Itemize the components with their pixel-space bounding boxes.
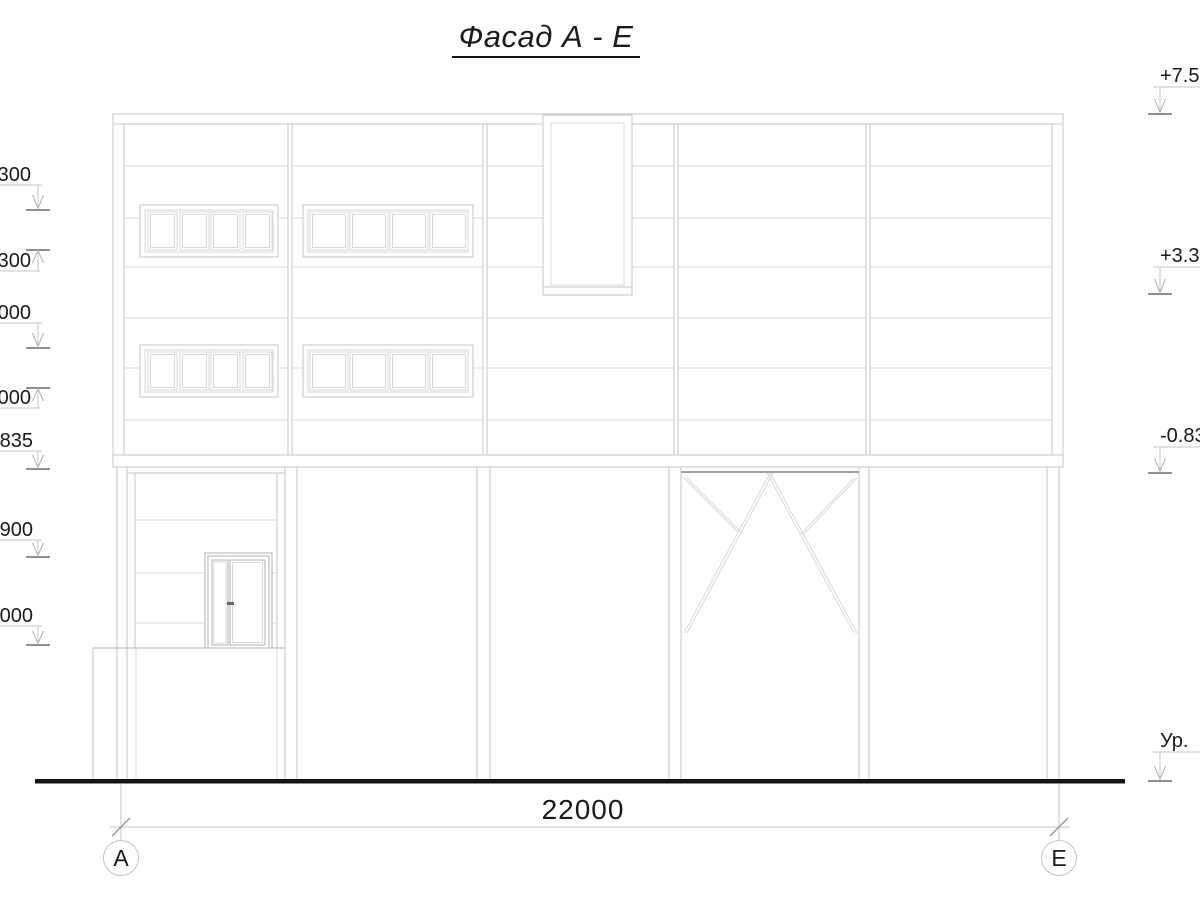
facade-elevation-drawing: Фасад А - Е (0, 0, 1200, 900)
entrance-bay (93, 473, 285, 779)
columns (117, 467, 1059, 780)
dimension-line-group: 22000 (110, 784, 1070, 841)
ribbon-window-bottom-left (140, 345, 278, 397)
elevation-value: 000 (0, 302, 31, 324)
elevation-value: +7.50 (1160, 65, 1200, 87)
elevation-marker-left-3: 000 (0, 302, 50, 348)
elevation-marker-left-2: .300 (0, 250, 50, 272)
title-block: Фасад А - Е (452, 19, 640, 57)
elevation-marker-right-4: Ур. (1148, 730, 1200, 781)
elevation-value: .835 (0, 430, 33, 452)
elevation-marker-left-6: .900 (0, 519, 50, 557)
ground-line (35, 779, 1125, 784)
elevation-marker-right-2: +3.30 (1148, 245, 1200, 294)
entrance-door (205, 553, 272, 648)
ribbon-window-top-right (303, 205, 473, 257)
bay-divider (483, 124, 487, 455)
door-leaf-right (230, 560, 265, 645)
elevation-value: .900 (0, 519, 33, 541)
dimension-value: 22000 (542, 794, 625, 825)
braced-bay (681, 472, 859, 633)
door-handle-icon (227, 602, 234, 605)
ribbon-window-bottom-right (303, 345, 473, 397)
bay-divider (866, 124, 870, 455)
drawing-sheet: Фасад А - Е (0, 0, 1200, 900)
elevation-value: +3.30 (1160, 245, 1200, 267)
axis-bubble-a: А (104, 841, 139, 876)
elevation-marker-left-7: .000 (0, 605, 50, 645)
elevation-value: .300 (0, 250, 31, 272)
bay-divider (288, 124, 292, 455)
elevation-marker-right-1: +7.50 (1148, 65, 1200, 114)
ribbon-window-top-left (140, 205, 278, 257)
elevation-marker-left-1: 300 (0, 164, 50, 210)
elevation-value: 300 (0, 164, 31, 186)
diagonal-braces (684, 473, 857, 633)
axis-bubble-e: Е (1042, 841, 1077, 876)
elevation-value: -0.83 (1160, 425, 1200, 447)
axis-label-e: Е (1051, 845, 1066, 871)
bay-divider (674, 124, 678, 455)
elevation-value: .000 (0, 387, 31, 409)
elevation-marker-right-3: -0.83 (1148, 425, 1200, 473)
entrance-wall-siding (135, 520, 277, 623)
axis-label-a: А (113, 845, 129, 871)
elevation-marker-left-4: .000 (0, 387, 50, 409)
elevation-value: .000 (0, 605, 33, 627)
drawing-title: Фасад А - Е (459, 19, 634, 54)
elevation-marker-left-5: .835 (0, 430, 50, 469)
elevation-value: Ур. (1160, 730, 1189, 752)
stair-tower-panel (543, 115, 632, 295)
